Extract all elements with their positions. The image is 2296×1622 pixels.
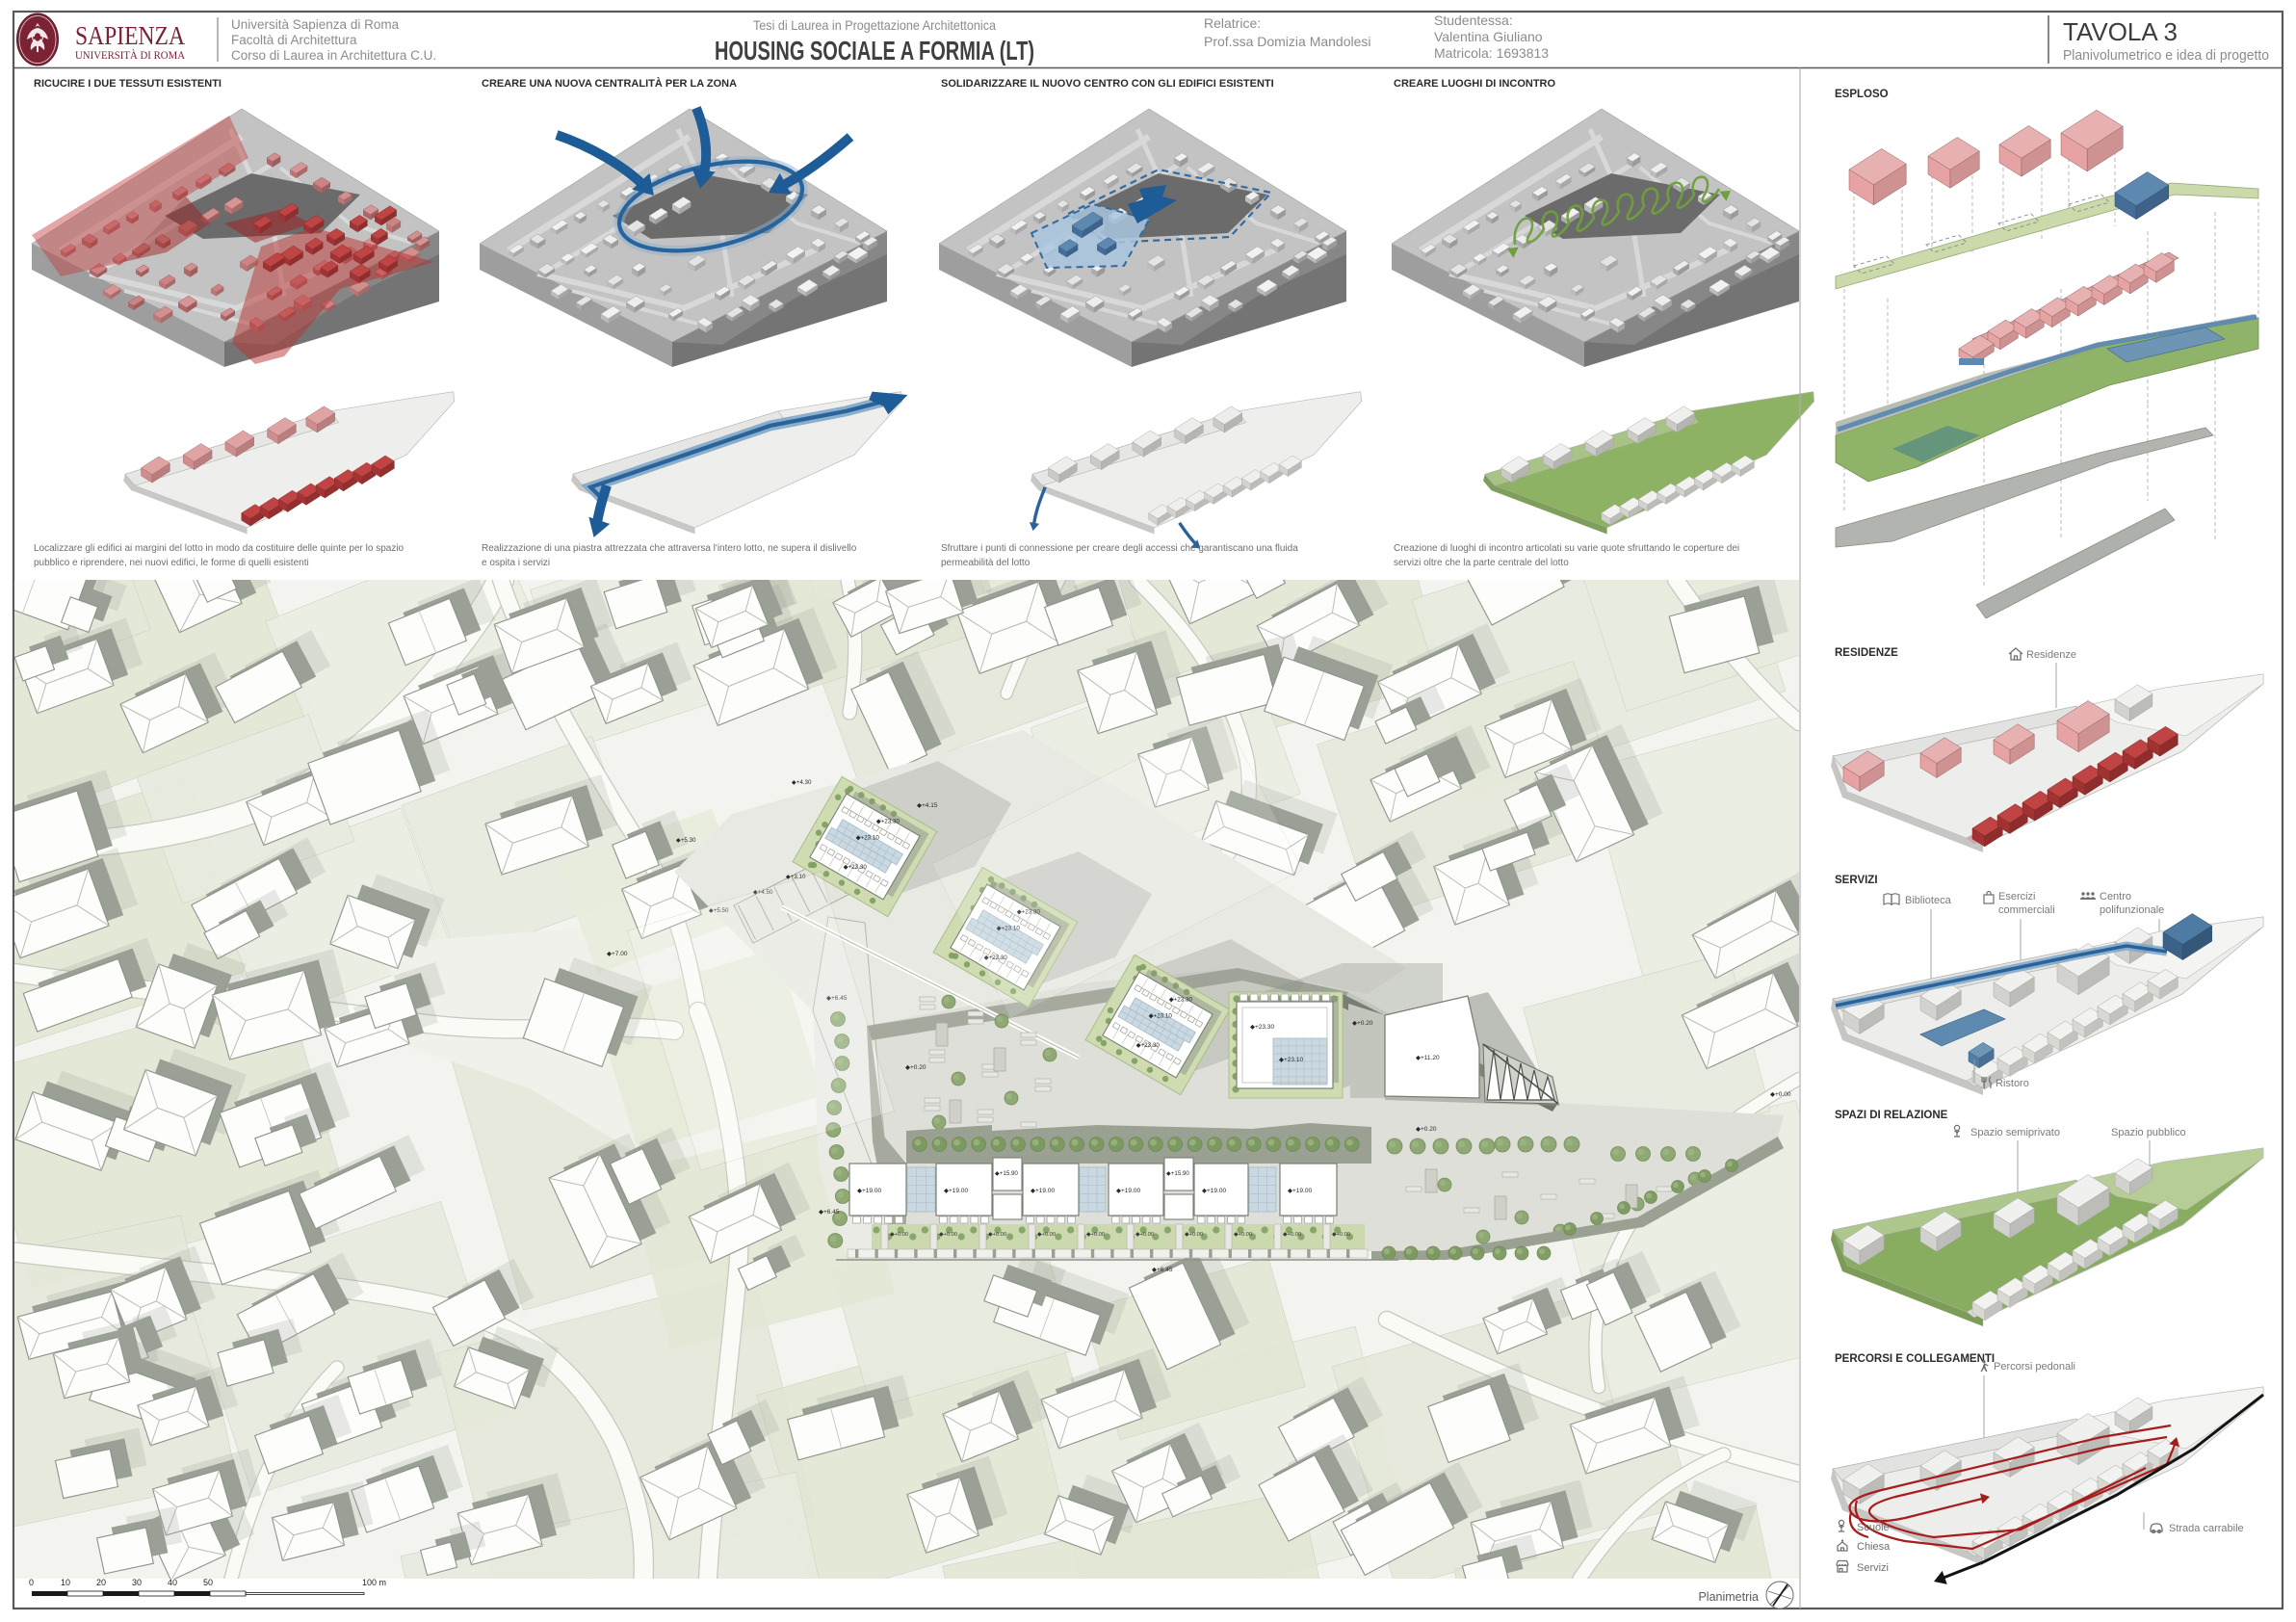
svg-text:CREARE UNA NUOVA CENTRALITÀ PE: CREARE UNA NUOVA CENTRALITÀ PER LA ZONA bbox=[482, 77, 737, 90]
svg-text:UNIVERSITÀ DI ROMA: UNIVERSITÀ DI ROMA bbox=[75, 48, 185, 62]
svg-text:◆+4.30: ◆+4.30 bbox=[792, 779, 812, 786]
svg-text:Residenze: Residenze bbox=[2026, 649, 2076, 661]
svg-text:◆+19.00: ◆+19.00 bbox=[1116, 1188, 1140, 1194]
svg-text:Planimetria: Planimetria bbox=[1698, 1590, 1759, 1604]
svg-text:◆+23.10: ◆+23.10 bbox=[1279, 1057, 1303, 1063]
svg-text:RESIDENZE: RESIDENZE bbox=[1835, 647, 1898, 659]
svg-text:◆+0.00: ◆+0.00 bbox=[1086, 1232, 1105, 1238]
svg-text:RICUCIRE I DUE TESSUTI ESISTEN: RICUCIRE I DUE TESSUTI ESISTENTI bbox=[34, 78, 222, 90]
svg-text:◆+19.00: ◆+19.00 bbox=[944, 1188, 968, 1194]
svg-text:100 m: 100 m bbox=[362, 1578, 386, 1587]
svg-text:TAVOLA 3: TAVOLA 3 bbox=[2063, 17, 2178, 46]
svg-text:Spazio pubblico: Spazio pubblico bbox=[2111, 1127, 2186, 1138]
svg-text:Facoltà di Architettura: Facoltà di Architettura bbox=[231, 33, 357, 47]
svg-text:◆+7.00: ◆+7.00 bbox=[607, 951, 628, 957]
svg-text:commerciali: commerciali bbox=[1998, 904, 2055, 916]
svg-text:polifunzionale: polifunzionale bbox=[2100, 904, 2164, 916]
svg-text:Corso di Laurea in Architettur: Corso di Laurea in Architettura C.U. bbox=[231, 48, 436, 63]
svg-text:HOUSING SOCIALE A FORMIA (LT): HOUSING SOCIALE A FORMIA (LT) bbox=[715, 36, 1034, 65]
svg-text:30: 30 bbox=[132, 1578, 142, 1587]
svg-text:◆+23.30: ◆+23.30 bbox=[844, 864, 868, 871]
svg-text:40: 40 bbox=[168, 1578, 177, 1587]
svg-text:Realizzazione di una piastra a: Realizzazione di una piastra attrezzata … bbox=[482, 543, 857, 554]
svg-text:20: 20 bbox=[96, 1578, 106, 1587]
svg-text:servizi oltre che la parte cen: servizi oltre che la parte centrale del … bbox=[1394, 558, 1569, 568]
svg-text:e ospita i servizi: e ospita i servizi bbox=[482, 558, 550, 568]
svg-text:50: 50 bbox=[203, 1578, 213, 1587]
svg-text:◆+6.45: ◆+6.45 bbox=[819, 1209, 840, 1216]
svg-text:Scuole: Scuole bbox=[1857, 1522, 1890, 1533]
svg-text:◆+23.30: ◆+23.30 bbox=[876, 819, 900, 825]
svg-text:◆+0.00: ◆+0.00 bbox=[1185, 1232, 1203, 1238]
svg-text:◆+23.30: ◆+23.30 bbox=[1250, 1024, 1274, 1031]
svg-text:◆+0.20: ◆+0.20 bbox=[1416, 1126, 1437, 1133]
svg-text:◆+19.00: ◆+19.00 bbox=[1031, 1188, 1055, 1194]
svg-text:◆+0.00: ◆+0.00 bbox=[1283, 1232, 1301, 1238]
svg-text:Percorsi pedonali: Percorsi pedonali bbox=[1994, 1361, 2075, 1373]
svg-text:Chiesa: Chiesa bbox=[1857, 1541, 1891, 1553]
svg-text:SOLIDARIZZARE IL NUOVO CENTRO: SOLIDARIZZARE IL NUOVO CENTRO CON GLI ED… bbox=[941, 78, 1274, 90]
svg-text:◆+15.90: ◆+15.90 bbox=[995, 1170, 1018, 1177]
svg-text:SPAZI DI RELAZIONE: SPAZI DI RELAZIONE bbox=[1835, 1110, 1948, 1121]
svg-text:◆+0.00: ◆+0.00 bbox=[1037, 1232, 1056, 1238]
svg-text:Planivolumetrico e idea di pro: Planivolumetrico e idea di progetto bbox=[2063, 48, 2269, 64]
svg-text:Biblioteca: Biblioteca bbox=[1905, 895, 1952, 906]
svg-text:10: 10 bbox=[61, 1578, 70, 1587]
svg-text:Esercizi: Esercizi bbox=[1998, 891, 2036, 903]
svg-text:Valentina Giuliano: Valentina Giuliano bbox=[1434, 29, 1543, 44]
svg-text:Studentessa:: Studentessa: bbox=[1434, 13, 1513, 28]
svg-text:◆+0.20: ◆+0.20 bbox=[905, 1064, 926, 1071]
svg-text:◆+19.00: ◆+19.00 bbox=[857, 1188, 881, 1194]
svg-text:Prof.ssa Domizia Mandolesi: Prof.ssa Domizia Mandolesi bbox=[1204, 34, 1371, 49]
svg-text:◆+19.00: ◆+19.00 bbox=[1202, 1188, 1226, 1194]
svg-text:Localizzare gli edifici ai mar: Localizzare gli edifici ai margini del l… bbox=[34, 543, 404, 554]
svg-text:Servizi: Servizi bbox=[1857, 1562, 1889, 1574]
svg-text:Spazio semiprivato: Spazio semiprivato bbox=[1970, 1127, 2060, 1138]
svg-text:SERVIZI: SERVIZI bbox=[1835, 875, 1878, 886]
svg-text:Tesi di Laurea in Progettazion: Tesi di Laurea in Progettazione Architet… bbox=[753, 17, 996, 33]
svg-text:◆+19.00: ◆+19.00 bbox=[1288, 1188, 1312, 1194]
svg-text:Università Sapienza di Roma: Università Sapienza di Roma bbox=[231, 17, 400, 32]
svg-text:◆+23.30: ◆+23.30 bbox=[1136, 1042, 1161, 1049]
svg-text:0: 0 bbox=[29, 1578, 34, 1587]
svg-text:Ristoro: Ristoro bbox=[1996, 1078, 2029, 1089]
svg-text:◆+23.30: ◆+23.30 bbox=[1169, 997, 1193, 1004]
svg-text:Centro: Centro bbox=[2100, 891, 2131, 903]
svg-text:Creazione di luoghi di incontr: Creazione di luoghi di incontro articola… bbox=[1394, 543, 1739, 554]
svg-text:ESPLOSO: ESPLOSO bbox=[1835, 89, 1889, 100]
svg-text:◆+0.00: ◆+0.00 bbox=[939, 1232, 957, 1238]
svg-text:SAPIENZA: SAPIENZA bbox=[75, 21, 185, 50]
svg-text:◆+6.45: ◆+6.45 bbox=[1152, 1267, 1173, 1273]
svg-text:◆+0.00: ◆+0.00 bbox=[1135, 1232, 1154, 1238]
svg-text:◆+0.00: ◆+0.00 bbox=[1234, 1232, 1252, 1238]
svg-text:◆+0.00: ◆+0.00 bbox=[988, 1232, 1006, 1238]
svg-text:◆+0.00: ◆+0.00 bbox=[1332, 1232, 1350, 1238]
svg-text:◆+15.90: ◆+15.90 bbox=[1166, 1170, 1189, 1177]
svg-text:Relatrice:: Relatrice: bbox=[1204, 15, 1261, 31]
svg-text:◆+23.10: ◆+23.10 bbox=[856, 834, 880, 841]
svg-text:◆+4.15: ◆+4.15 bbox=[917, 802, 938, 809]
svg-text:Matricola: 1693813: Matricola: 1693813 bbox=[1434, 45, 1549, 61]
svg-text:Sfruttare i punti di connessio: Sfruttare i punti di connessione per cre… bbox=[941, 543, 1298, 554]
svg-text:PERCORSI E COLLEGAMENTI: PERCORSI E COLLEGAMENTI bbox=[1835, 1353, 1995, 1365]
svg-text:◆+0.20: ◆+0.20 bbox=[1352, 1020, 1373, 1027]
svg-text:◆+0.00: ◆+0.00 bbox=[1770, 1091, 1791, 1098]
svg-text:pubblico e riprendere, nei nuo: pubblico e riprendere, nei nuovi edifici… bbox=[34, 558, 309, 568]
svg-text:◆+5.30: ◆+5.30 bbox=[676, 837, 696, 844]
svg-text:Strada carrabile: Strada carrabile bbox=[2169, 1523, 2244, 1534]
svg-text:◆+11.20: ◆+11.20 bbox=[1416, 1055, 1440, 1061]
svg-text:permeabilità del lotto: permeabilità del lotto bbox=[941, 558, 1031, 568]
svg-text:CREARE LUOGHI DI INCONTRO: CREARE LUOGHI DI INCONTRO bbox=[1394, 78, 1556, 90]
svg-text:◆+0.00: ◆+0.00 bbox=[890, 1232, 908, 1238]
svg-text:◆+23.10: ◆+23.10 bbox=[1149, 1012, 1173, 1019]
